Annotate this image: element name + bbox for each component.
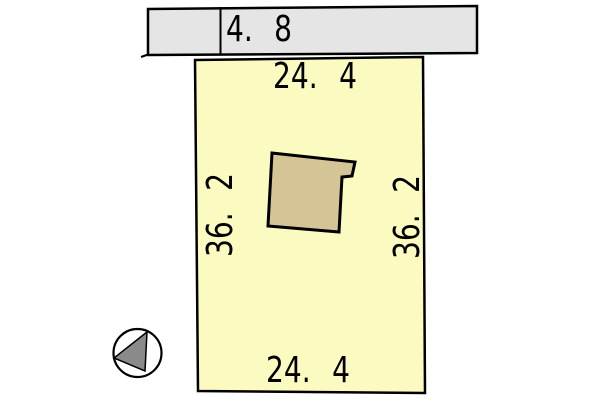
north-arrow-icon (114, 329, 162, 377)
road-edge-stub-line (141, 55, 148, 58)
lot-diagram: 4. 8 24. 4 24. 4 36. 2 36. 2 (0, 0, 600, 400)
road-shape (148, 6, 477, 55)
diagram-canvas (0, 0, 600, 400)
